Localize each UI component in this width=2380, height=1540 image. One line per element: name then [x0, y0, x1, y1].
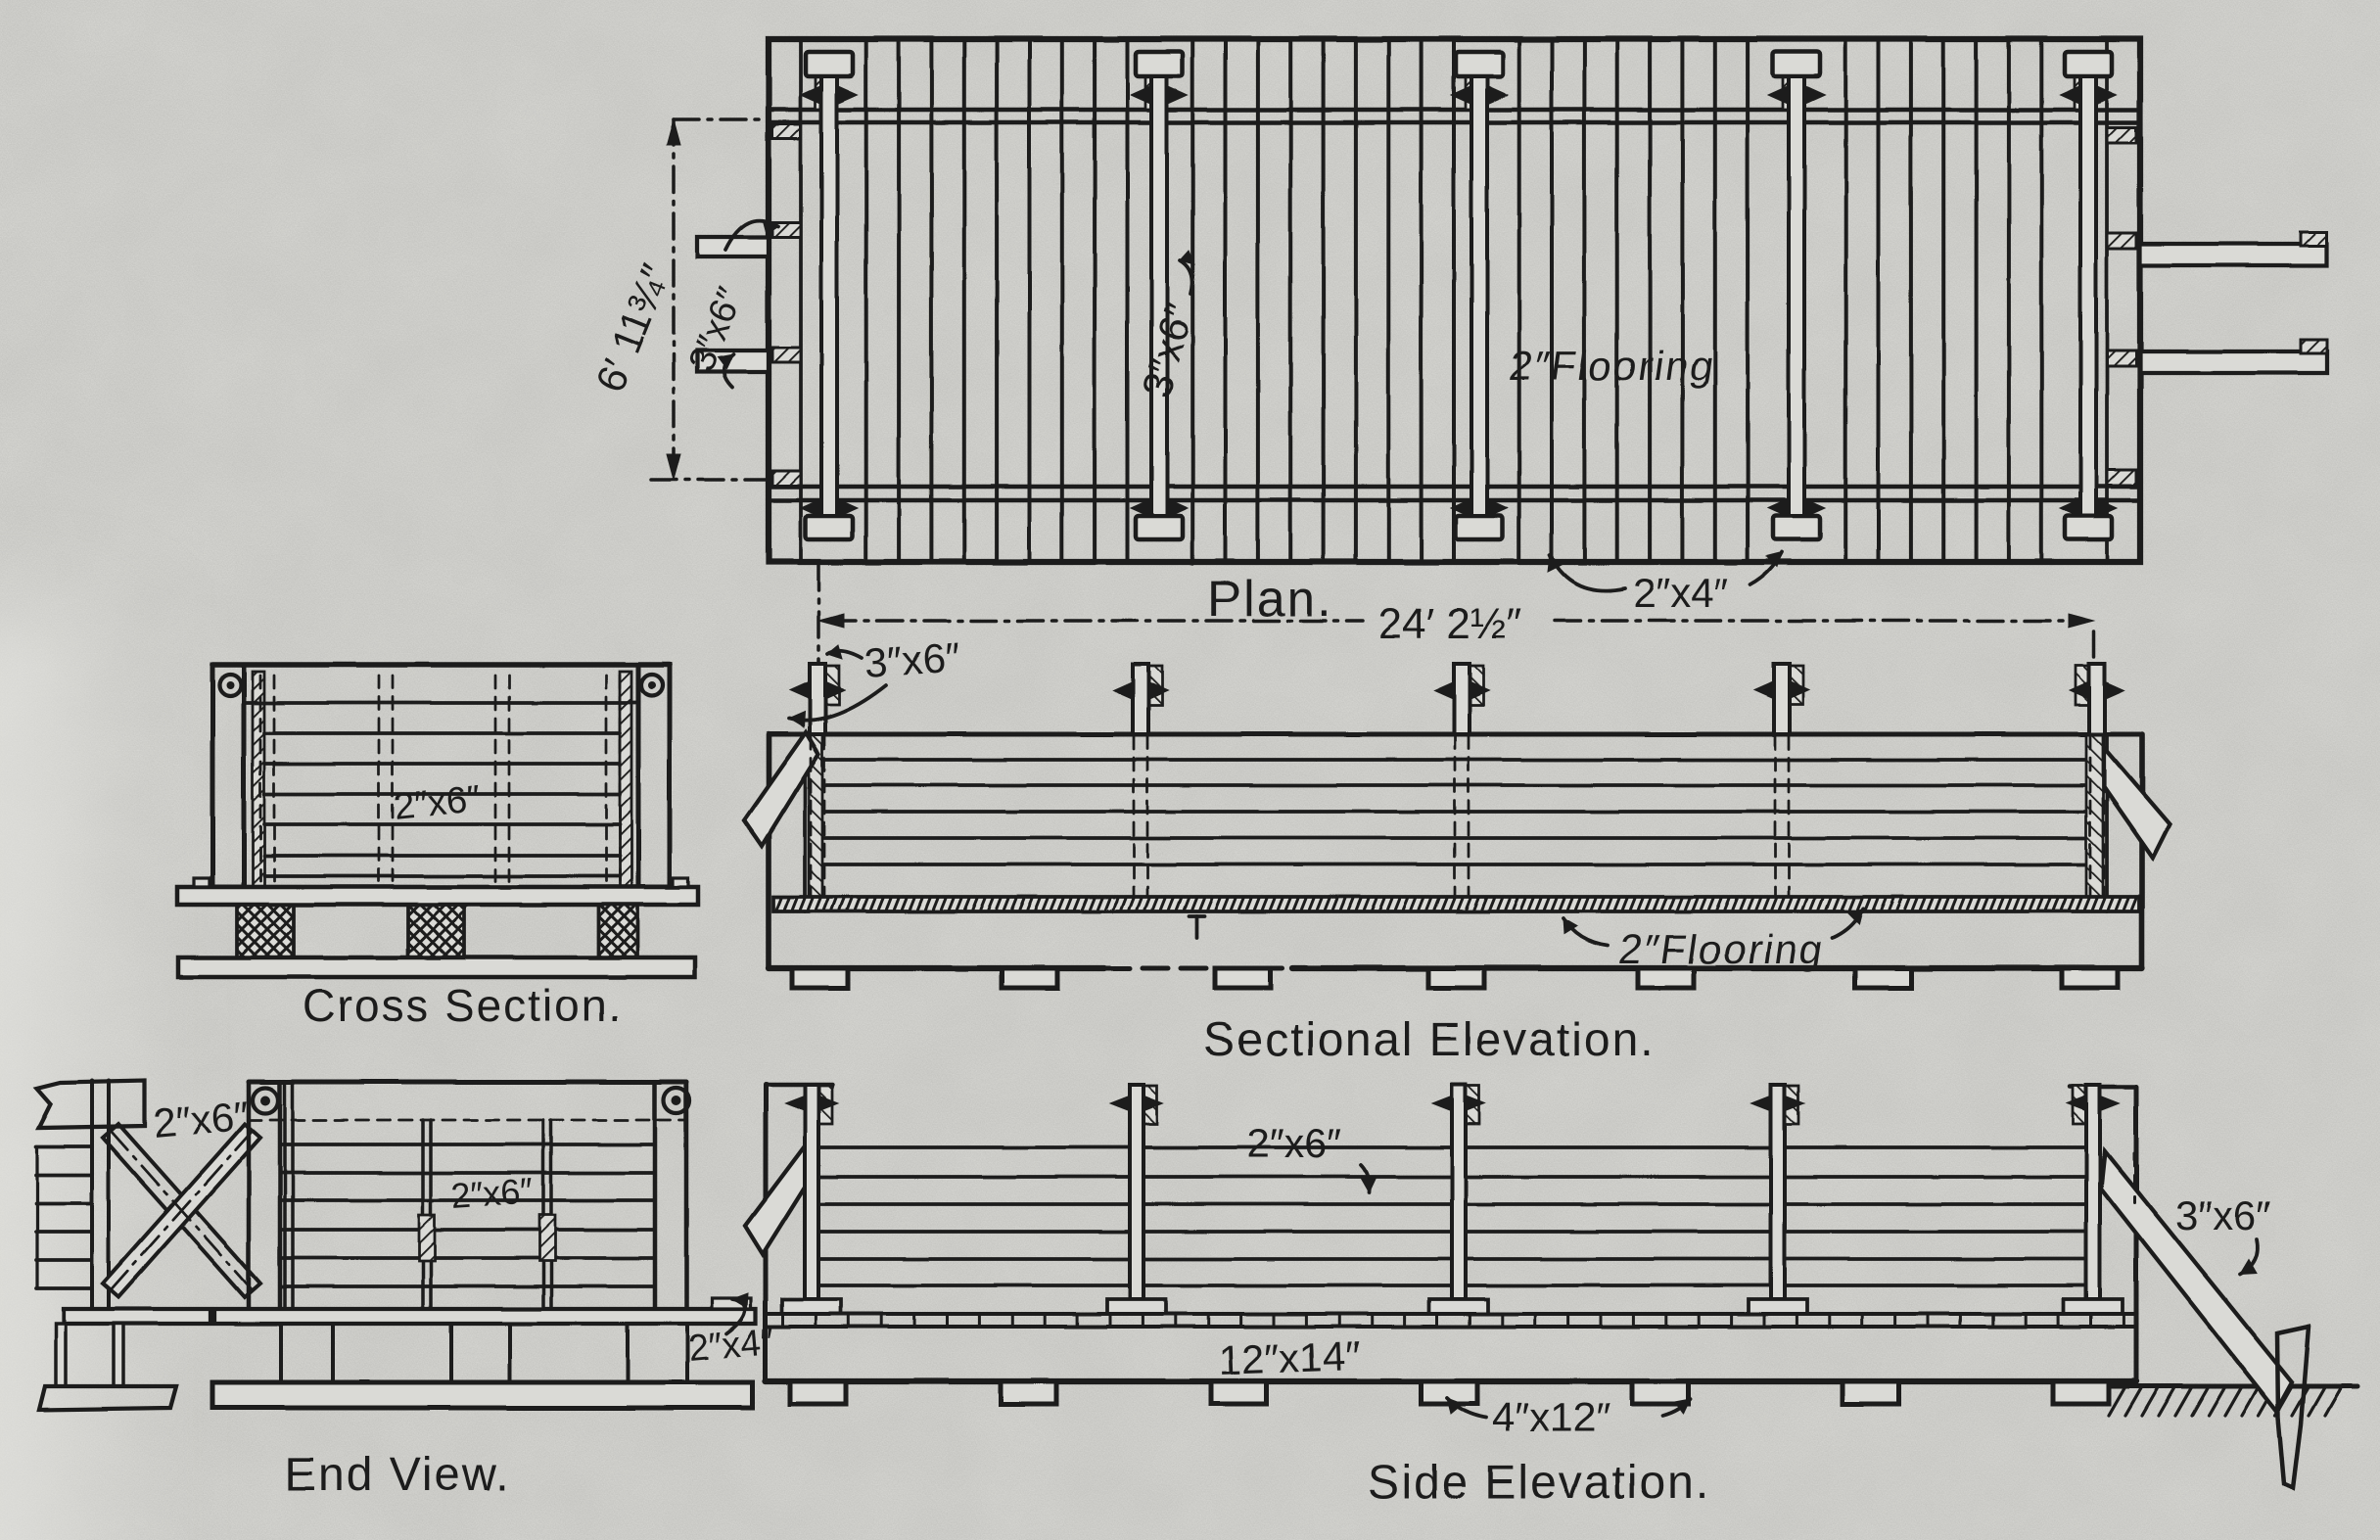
svg-text:4″x12″: 4″x12″: [1492, 1394, 1610, 1440]
svg-text:2″Flooring: 2″Flooring: [1507, 343, 1718, 389]
svg-text:Cross Section.: Cross Section.: [303, 980, 623, 1031]
svg-text:24′ 2½″: 24′ 2½″: [1378, 600, 1521, 648]
svg-text:2″x6″: 2″x6″: [152, 1093, 251, 1146]
svg-text:2″Flooring: 2″Flooring: [1616, 926, 1828, 972]
svg-text:Side Elevation.: Side Elevation.: [1368, 1457, 1710, 1509]
svg-text:2″x6″: 2″x6″: [450, 1170, 535, 1216]
svg-text:2″x4″: 2″x4″: [1633, 570, 1729, 616]
svg-text:Sectional Elevation.: Sectional Elevation.: [1203, 1014, 1656, 1066]
svg-text:3″x6″: 3″x6″: [2175, 1192, 2271, 1238]
svg-text:End View.: End View.: [285, 1449, 511, 1501]
svg-text:2″x6″: 2″x6″: [1246, 1120, 1342, 1166]
svg-text:12″x14″: 12″x14″: [1218, 1332, 1361, 1383]
svg-text:3″x6″: 3″x6″: [863, 633, 961, 686]
